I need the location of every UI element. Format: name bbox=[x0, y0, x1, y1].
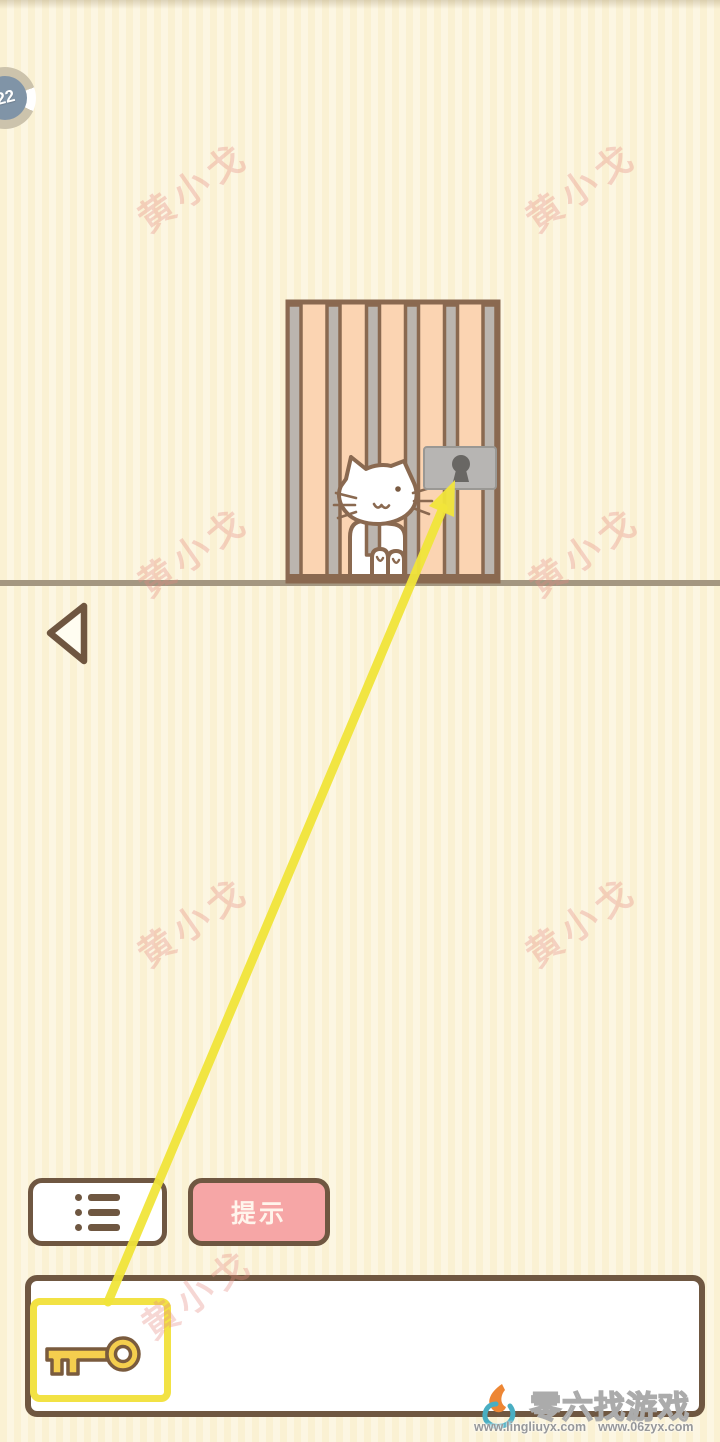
hint-arrow bbox=[0, 0, 720, 1442]
site-url-left: www.lingliuyx.com bbox=[474, 1420, 586, 1434]
arrow-head bbox=[429, 480, 455, 517]
site-watermark: 零六找游戏 www.lingliuyx.com www.06zyx.com bbox=[472, 1382, 714, 1440]
game-screen: 22 bbox=[0, 0, 720, 1442]
site-url-right: www.06zyx.com bbox=[598, 1420, 693, 1434]
